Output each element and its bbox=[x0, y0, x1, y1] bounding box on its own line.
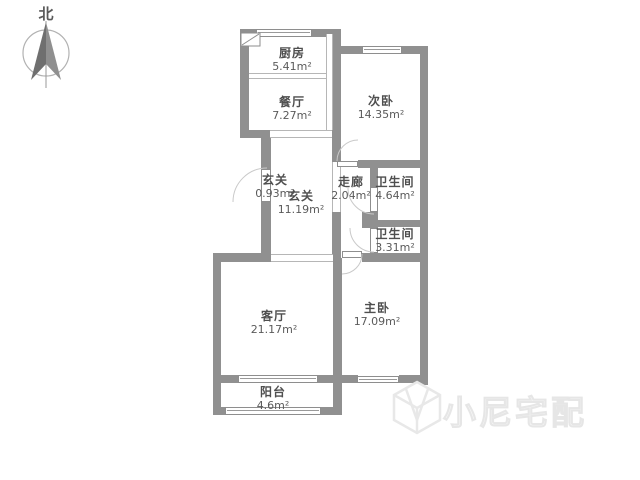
room-name: 玄关 bbox=[233, 173, 317, 187]
room-area: 7.27m² bbox=[250, 109, 334, 122]
opening-foyer-living bbox=[271, 254, 333, 262]
wall bbox=[213, 375, 238, 383]
wall bbox=[370, 166, 378, 188]
room-label-living-room: 客厅 21.17m² bbox=[232, 309, 316, 336]
master-bedroom-door bbox=[342, 251, 362, 258]
room-name: 主卧 bbox=[335, 301, 419, 315]
room-area: 2.04m² bbox=[309, 189, 393, 202]
wall bbox=[318, 375, 340, 383]
room-name: 厨房 bbox=[250, 46, 334, 60]
window bbox=[357, 376, 399, 383]
room-name: 客厅 bbox=[232, 309, 316, 323]
duct-shaft bbox=[326, 34, 333, 130]
opening-dining-foyer bbox=[270, 130, 332, 138]
wall bbox=[420, 46, 428, 385]
wall bbox=[261, 202, 271, 257]
wall bbox=[213, 253, 221, 415]
room-label-foyer: 玄关 11.19m² bbox=[259, 189, 343, 216]
wall bbox=[333, 258, 342, 415]
room-area: 5.41m² bbox=[250, 60, 334, 73]
room-name: 玄关 bbox=[259, 189, 343, 203]
room-area: 21.17m² bbox=[232, 323, 316, 336]
room-label-master-bedroom: 主卧 17.09m² bbox=[335, 301, 419, 328]
room-label-corridor: 走廊 2.04m² bbox=[309, 175, 393, 202]
opening-foyer-corridor bbox=[332, 162, 341, 212]
wall bbox=[261, 136, 271, 170]
wall bbox=[358, 160, 428, 168]
room-name: 餐厅 bbox=[250, 95, 334, 109]
room-name: 走廊 bbox=[309, 175, 393, 189]
room-label-kitchen: 厨房 5.41m² bbox=[250, 46, 334, 73]
wall bbox=[213, 407, 225, 415]
north-compass-icon: 北 bbox=[23, 5, 69, 88]
entrance-door bbox=[261, 169, 271, 202]
wall bbox=[399, 375, 428, 383]
room-name: 次卧 bbox=[339, 94, 423, 108]
bathroom2-door bbox=[370, 228, 378, 253]
room-label-bedroom2: 次卧 14.35m² bbox=[339, 94, 423, 121]
wall bbox=[213, 253, 271, 262]
kitchen-dining-divider bbox=[249, 73, 332, 79]
balcony-slider-window bbox=[238, 375, 318, 383]
wall bbox=[362, 253, 428, 262]
room-area: 0.93m² bbox=[233, 187, 317, 200]
watermark-text: 小尼宅配 bbox=[443, 386, 587, 434]
room-area: 11.19m² bbox=[259, 203, 343, 216]
window bbox=[256, 29, 312, 37]
bedroom2-door bbox=[337, 161, 358, 167]
compass-north-label: 北 bbox=[38, 5, 53, 23]
window bbox=[225, 407, 321, 415]
watermark-cube-icon bbox=[394, 382, 440, 433]
bathroom1-door bbox=[370, 187, 378, 212]
wall bbox=[240, 29, 249, 138]
room-name: 阳台 bbox=[231, 385, 315, 399]
room-area: 17.09m² bbox=[335, 315, 419, 328]
wall bbox=[321, 407, 338, 415]
floor-plan: 厨房 5.41m² 餐厅 7.27m² 次卧 14.35m² 玄关 0.93m²… bbox=[0, 0, 640, 480]
room-label-dining: 餐厅 7.27m² bbox=[250, 95, 334, 122]
room-label-foyer-small: 玄关 0.93m² bbox=[233, 173, 317, 200]
wall bbox=[332, 212, 341, 260]
window bbox=[362, 46, 402, 54]
wall bbox=[340, 375, 358, 383]
room-area: 14.35m² bbox=[339, 108, 423, 121]
wall bbox=[370, 220, 428, 227]
